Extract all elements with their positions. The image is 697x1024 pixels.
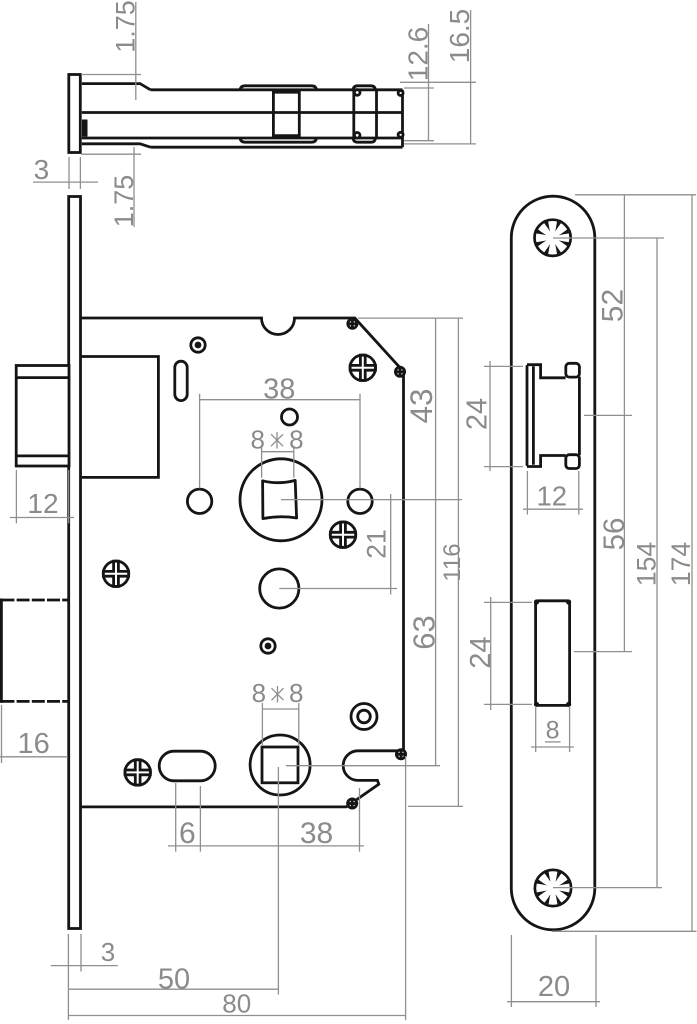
svg-text:1.75: 1.75: [111, 0, 141, 53]
svg-text:16.5: 16.5: [444, 9, 475, 64]
svg-text:154: 154: [632, 542, 662, 586]
svg-text:20: 20: [538, 971, 570, 1003]
svg-text:56: 56: [598, 518, 631, 551]
svg-text:3: 3: [101, 937, 115, 967]
svg-text:24: 24: [462, 398, 494, 430]
svg-text:52: 52: [597, 289, 630, 322]
svg-text:8: 8: [289, 678, 303, 708]
svg-text:8: 8: [250, 425, 264, 455]
svg-text:12: 12: [537, 481, 568, 512]
svg-text:24: 24: [465, 636, 497, 668]
svg-text:8: 8: [289, 425, 303, 455]
svg-text:8: 8: [546, 716, 560, 744]
svg-text:6: 6: [179, 817, 196, 850]
svg-text:80: 80: [222, 989, 251, 1019]
svg-text:43: 43: [403, 388, 439, 423]
svg-text:174: 174: [666, 542, 696, 586]
svg-text:16: 16: [17, 728, 49, 760]
svg-text:116: 116: [439, 543, 466, 581]
svg-text:3: 3: [34, 154, 50, 185]
svg-text:21: 21: [362, 529, 392, 558]
svg-text:12: 12: [27, 488, 58, 519]
svg-text:38: 38: [263, 374, 295, 406]
svg-text:12.6: 12.6: [403, 27, 434, 82]
svg-text:8: 8: [252, 678, 266, 708]
svg-text:1.75: 1.75: [109, 175, 139, 228]
svg-text:50: 50: [158, 964, 190, 996]
svg-text:63: 63: [407, 615, 442, 649]
svg-text:38: 38: [300, 817, 333, 850]
